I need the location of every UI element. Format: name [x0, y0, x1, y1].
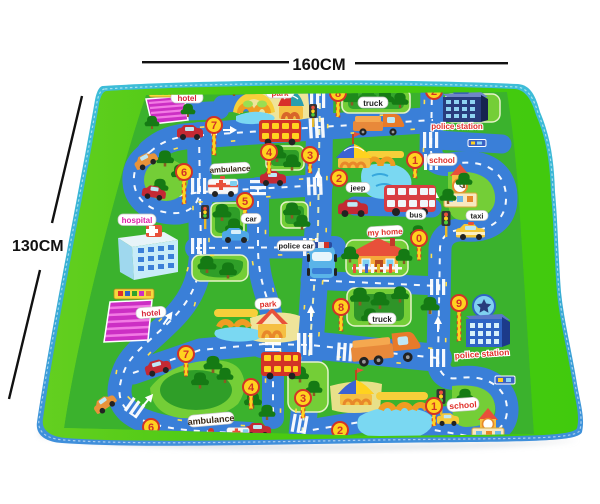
- svg-text:school: school: [449, 399, 477, 411]
- svg-text:1: 1: [431, 401, 437, 413]
- svg-text:5: 5: [242, 196, 248, 208]
- svg-text:4: 4: [266, 147, 273, 159]
- svg-text:park: park: [259, 299, 277, 309]
- svg-text:0: 0: [416, 233, 422, 245]
- svg-text:car: car: [245, 215, 256, 224]
- svg-text:truck: truck: [372, 315, 392, 324]
- svg-text:1: 1: [412, 155, 418, 167]
- svg-text:6: 6: [181, 167, 187, 179]
- svg-text:bus: bus: [409, 211, 422, 220]
- svg-text:school: school: [429, 156, 455, 165]
- svg-text:hotel: hotel: [177, 94, 196, 103]
- svg-text:3: 3: [307, 150, 313, 162]
- svg-text:7: 7: [183, 349, 189, 361]
- svg-text:my home: my home: [367, 227, 403, 238]
- svg-text:2: 2: [336, 173, 342, 185]
- svg-text:4: 4: [248, 382, 255, 394]
- svg-text:hotel: hotel: [141, 308, 161, 318]
- svg-text:7: 7: [211, 120, 217, 132]
- svg-text:3: 3: [300, 393, 306, 405]
- svg-text:160CM: 160CM: [292, 56, 345, 74]
- svg-text:taxi: taxi: [471, 212, 484, 221]
- svg-text:130CM: 130CM: [12, 238, 64, 255]
- svg-text:8: 8: [338, 302, 344, 314]
- svg-text:police car: police car: [278, 242, 313, 251]
- svg-text:jeep: jeep: [349, 184, 365, 193]
- svg-text:police station: police station: [431, 122, 483, 131]
- svg-text:truck: truck: [363, 99, 383, 108]
- svg-text:hospital: hospital: [122, 216, 153, 225]
- svg-text:9: 9: [456, 298, 462, 310]
